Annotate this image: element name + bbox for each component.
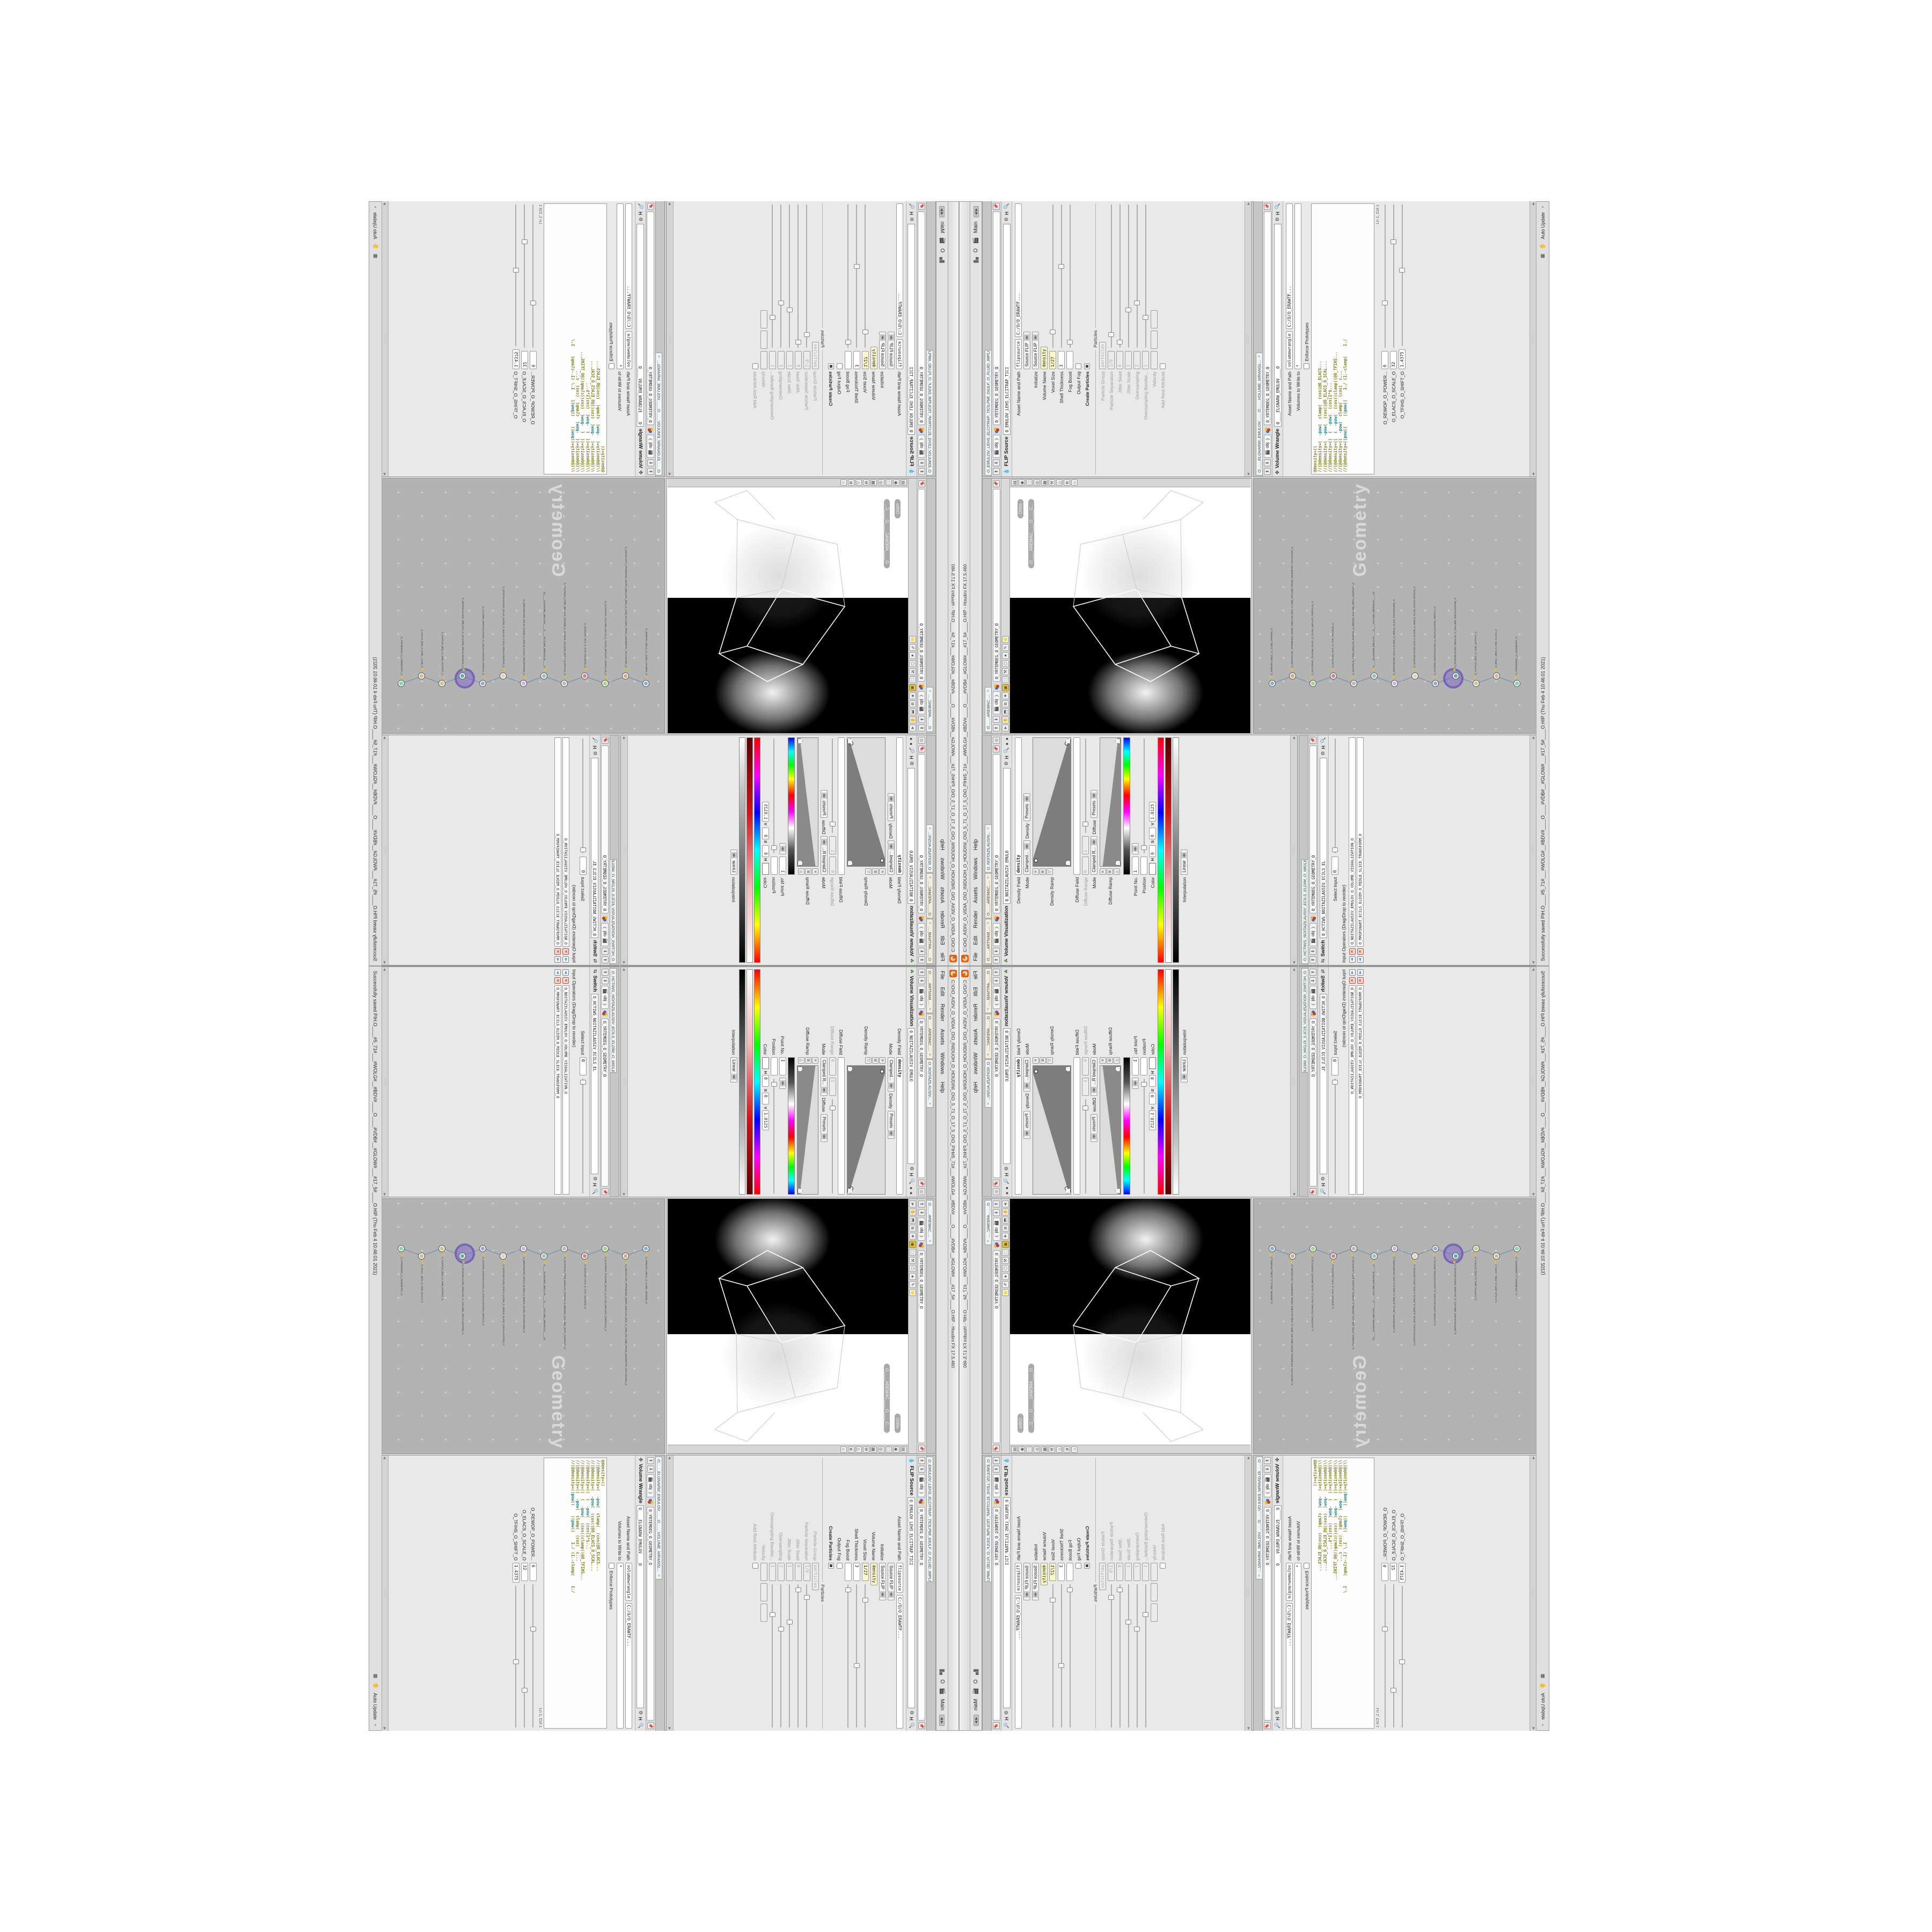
- node-name-field[interactable]: O_NOITAZILAUSIV_EMULO: [908, 768, 916, 904]
- viewport-render-area[interactable]: Ortho O____AREMAC____O____C...: [668, 1199, 908, 1445]
- value-slider[interactable]: [739, 737, 745, 963]
- menu-help[interactable]: Help: [939, 839, 945, 851]
- asset-name-field[interactable]: volumewrangle: [625, 331, 632, 369]
- camera-pill-ortho[interactable]: Ortho: [895, 499, 901, 518]
- pane-tab[interactable]: O_NOITAZILAUSIV...✕: [985, 1059, 991, 1108]
- viewport-display-icon[interactable]: ▦: [870, 480, 877, 486]
- viewport-display-icon[interactable]: ⬚: [885, 480, 892, 486]
- pane-tab[interactable]: O____ELGNARW_EMULOV____O____VOLUME_WRANG…: [1256, 1457, 1262, 1579]
- viewport-tool-icon[interactable]: ▣: [1002, 1241, 1009, 1248]
- network-node[interactable]: [1269, 680, 1276, 687]
- menu-assets[interactable]: Assets: [973, 887, 979, 903]
- val-input[interactable]: 1.8125: [762, 1110, 769, 1130]
- param-field[interactable]: 2: [778, 351, 785, 369]
- viewport-display-icon[interactable]: ⬚: [1026, 480, 1033, 486]
- diffuse-ramp-gradient[interactable]: [1123, 737, 1130, 875]
- presets2-dropdown[interactable]: Presets◀▶: [1091, 790, 1097, 818]
- color-swatch[interactable]: [762, 863, 769, 875]
- param-slider[interactable]: [1108, 1583, 1115, 1729]
- param-slider[interactable]: [845, 203, 852, 349]
- menu-windows[interactable]: Windows: [939, 858, 945, 880]
- ramp-point[interactable]: [1034, 1070, 1038, 1073]
- camera-pill-ortho[interactable]: Ortho: [1018, 499, 1023, 518]
- pane-scrollbar[interactable]: ◀::::::▶: [1245, 201, 1252, 477]
- node-name-field[interactable]: O_EMULOV_LEHS_ELCITRAP_TICI: [908, 224, 916, 435]
- diffuse-ramp-editor[interactable]: [797, 737, 818, 867]
- param-checkbox[interactable]: [1075, 363, 1081, 369]
- network-node[interactable]: [622, 672, 629, 679]
- network-node[interactable]: [500, 1253, 507, 1260]
- node-flag[interactable]: [1311, 676, 1313, 678]
- asset-path-field[interactable]: C:/O/O_ERAWTF...: [625, 1603, 632, 1729]
- nav-down-icon[interactable]: ⬇: [1264, 1466, 1271, 1473]
- param-field[interactable]: [760, 1583, 767, 1601]
- node-flag[interactable]: [1351, 676, 1353, 678]
- gear-icon[interactable]: ⚙: [909, 1166, 914, 1170]
- pane-scrollbar[interactable]: ◀::::::▶: [382, 201, 389, 477]
- node-name-field[interactable]: O_EMULOV_LEHS_ELCITRAP_TICI: [908, 1497, 916, 1708]
- network-node[interactable]: [418, 672, 425, 679]
- point-no-input[interactable]: 1: [1132, 1057, 1139, 1075]
- ramp-add-icon[interactable]: ⊞: [872, 1057, 879, 1064]
- nav-left-right[interactable]: ◀ ▶: [940, 1715, 945, 1726]
- node-flag[interactable]: [646, 676, 648, 678]
- context-crumb[interactable]: 🎬obj❯: [918, 1474, 926, 1497]
- pane-tab[interactable]: O____AREMAC_...✕: [985, 873, 991, 918]
- pane-tab[interactable]: O____AREMAC_...✕: [927, 1014, 933, 1059]
- node-flag[interactable]: [605, 1254, 608, 1256]
- spare-param-field[interactable]: 6: [1381, 351, 1388, 369]
- reorder-icon[interactable]: ➜: [555, 956, 561, 963]
- viewport-display-icon[interactable]: ⚒: [1049, 1446, 1055, 1453]
- gear-icon[interactable]: ⚙: [1004, 1710, 1009, 1715]
- mode-dropdown[interactable]: Clamped...◀▶: [888, 840, 895, 875]
- search-icon[interactable]: 🔍: [1004, 203, 1009, 209]
- param-field[interactable]: 1/27: [1049, 351, 1056, 369]
- node-name-field[interactable]: O_NOITAZILAUSIV_EMULO: [908, 1028, 916, 1164]
- houdini-help-icon[interactable]: H: [1004, 1717, 1009, 1721]
- asset-name-field[interactable]: flipsource: [1015, 1563, 1022, 1593]
- pin-icon[interactable]: 📌: [918, 480, 925, 487]
- node-flag[interactable]: [422, 1261, 424, 1263]
- pin-icon[interactable]: 📌: [602, 737, 609, 744]
- sat-input[interactable]: 0: [1149, 828, 1156, 839]
- viewport-tool-icon[interactable]: ●: [1002, 1273, 1009, 1280]
- camera-pill-name[interactable]: O____AREMAC____O____C...: [884, 499, 890, 568]
- ramp-add-icon[interactable]: ⊞: [1107, 868, 1113, 875]
- pane-tab[interactable]: O_HCTIWS_NOITAZILAUSIV_ECILS_ELDIM_O_MID…: [1301, 859, 1308, 964]
- param-field[interactable]: [845, 351, 852, 369]
- viewport-display-icon[interactable]: ○: [840, 1446, 847, 1453]
- asset-path-field[interactable]: C:/O/O_ERAWTF...: [1015, 1595, 1022, 1729]
- ramp-expand-icon[interactable]: △: [1114, 868, 1120, 875]
- density-field-input[interactable]: density: [1015, 737, 1022, 875]
- param-slider[interactable]: [853, 203, 860, 349]
- diffuse-range-slider[interactable]: [1082, 1098, 1089, 1195]
- param-field[interactable]: density: [870, 1563, 877, 1585]
- network-node[interactable]: [398, 1245, 405, 1252]
- param-field[interactable]: [1151, 310, 1158, 328]
- param-field[interactable]: 1: [1125, 351, 1132, 369]
- network-node[interactable]: [1371, 672, 1378, 679]
- viewport-tool-icon[interactable]: ⬒: [909, 1217, 916, 1224]
- auto-update-selector[interactable]: Auto Update: [1540, 213, 1546, 239]
- reorder-icon[interactable]: ➜: [563, 969, 569, 976]
- node-flag[interactable]: [1290, 1261, 1292, 1263]
- position-slider[interactable]: [771, 737, 778, 854]
- viewport-tool-icon[interactable]: ●: [909, 652, 916, 659]
- search-icon[interactable]: 🔍: [909, 1179, 914, 1184]
- hue-slider[interactable]: [1158, 737, 1164, 963]
- pane-tab[interactable]: O____ARTNAM_...✕: [927, 919, 933, 964]
- remove-operator-icon[interactable]: ✕: [1357, 948, 1364, 955]
- context-crumb[interactable]: 🎬obj❯: [993, 1474, 1000, 1497]
- param-slider[interactable]: [1058, 1583, 1065, 1729]
- network-node[interactable]: [438, 680, 445, 687]
- param-field[interactable]: particles: [1099, 1563, 1106, 1590]
- viewport-tool-icon[interactable]: ⭐: [909, 1289, 916, 1296]
- param-slider[interactable]: [1066, 203, 1073, 349]
- network-node[interactable]: [581, 672, 588, 679]
- param-field[interactable]: density: [870, 347, 877, 369]
- context-crumb[interactable]: 🎬obj❯: [918, 923, 926, 946]
- remove-operator-icon[interactable]: ✕: [563, 977, 569, 984]
- menu-windows[interactable]: Windows: [939, 1052, 945, 1074]
- asset-name-field[interactable]: volumewrangle: [1286, 1563, 1293, 1601]
- value-slider[interactable]: [739, 969, 745, 1195]
- title-bar[interactable]: C:\O\O_AIDIV_O_VIDIA_O\O_INIDUOH_O_HOUDI…: [948, 202, 958, 965]
- menu-edit[interactable]: Edit: [939, 936, 945, 945]
- param-slider[interactable]: [1390, 203, 1397, 349]
- param-field[interactable]: 0: [1116, 1563, 1123, 1581]
- network-node[interactable]: [520, 1245, 527, 1252]
- param-slider[interactable]: [1066, 1583, 1073, 1729]
- nav-down-icon[interactable]: ⬇: [647, 1466, 654, 1473]
- pin-icon[interactable]: 📌: [993, 203, 1000, 210]
- menu-file[interactable]: File: [973, 971, 979, 979]
- vexpression-editor[interactable]: @density=(( //(@density=( -pow( clamp( (…: [1311, 203, 1374, 474]
- sat-input[interactable]: 0: [1149, 1093, 1156, 1104]
- info-icon[interactable]: ●: [1004, 1187, 1009, 1189]
- target-icon[interactable]: ◎: [993, 737, 1000, 744]
- houdini-help-icon[interactable]: H: [1004, 756, 1009, 759]
- nav-down-icon[interactable]: ⬇: [918, 716, 925, 723]
- viewport-tool-icon[interactable]: ⬒: [1002, 1217, 1009, 1224]
- network-node[interactable]: [1350, 680, 1357, 687]
- ramp-add-icon[interactable]: ⊞: [1040, 1057, 1046, 1064]
- node-flag[interactable]: [442, 1254, 444, 1256]
- pane-tab[interactable]: O_HCTIWS_NOITAZILAUSIV_ECILS_ELDIM_O_MID…: [610, 859, 617, 964]
- node-path-field[interactable]: O_YRTEMOEG_O_GEOMETRY_O: [1309, 1019, 1317, 1187]
- param-field[interactable]: [1151, 1583, 1158, 1601]
- viewport-tool-icon[interactable]: ⭐: [1002, 636, 1009, 643]
- density-field-input[interactable]: density: [896, 737, 903, 875]
- nav-down-icon[interactable]: ⬇: [602, 948, 609, 955]
- search-icon[interactable]: 🔍: [1004, 748, 1009, 753]
- mode-dropdown[interactable]: Clamped...◀▶: [888, 1057, 895, 1092]
- houdini-help-icon[interactable]: H: [909, 211, 914, 215]
- pane-tab[interactable]: O____AREMAC_...✕: [927, 1200, 933, 1245]
- pane-tab[interactable]: O____AREMAC_...✕: [985, 1014, 991, 1059]
- node-flag[interactable]: [503, 669, 506, 671]
- value-slider[interactable]: [1173, 737, 1179, 963]
- nav-up-icon[interactable]: ⬆: [1309, 969, 1316, 976]
- reorder-icon[interactable]: ➜: [1349, 956, 1356, 963]
- spare-param-field[interactable]: 32: [521, 1563, 528, 1581]
- network-node[interactable]: [540, 1253, 547, 1260]
- node-name-field[interactable]: O_HCTIWS_NOITAZILAUSIV_ECILS_EL: [591, 758, 599, 938]
- remove-operator-icon[interactable]: ✕: [1349, 948, 1356, 955]
- network-node[interactable]: [1309, 1245, 1316, 1252]
- param-slider[interactable]: [1142, 1583, 1149, 1729]
- search-icon[interactable]: 🔍: [1275, 203, 1280, 209]
- pane-tab[interactable]: O____AREMAC_...✕: [985, 1200, 991, 1245]
- nav-up-icon[interactable]: ⬆: [918, 468, 925, 475]
- viewport-tool-icon[interactable]: ✋: [1002, 1209, 1009, 1216]
- param-slider[interactable]: [803, 203, 810, 349]
- node-name-field[interactable]: O_NOITAZILAUSIV_EMULO: [1003, 1028, 1011, 1164]
- saturation-slider[interactable]: [1165, 737, 1172, 963]
- param-dropdown[interactable]: Source FLIP◀▶: [1032, 1563, 1039, 1600]
- help-icon[interactable]: ●: [1004, 737, 1009, 740]
- pane-scrollbar[interactable]: ◀::::::▶: [621, 735, 628, 965]
- viewport-tool-icon[interactable]: ⧉: [909, 1225, 916, 1232]
- viewport-tool-icon[interactable]: ⚒: [1002, 1257, 1009, 1264]
- network-node[interactable]: [418, 1253, 425, 1260]
- viewport-display-icon[interactable]: ⚒: [863, 480, 869, 486]
- viewport-display-icon[interactable]: ◉: [893, 1446, 899, 1453]
- interpolation-dropdown[interactable]: Linear◀▶: [1181, 850, 1188, 875]
- param-slider[interactable]: [513, 203, 519, 347]
- ramp-marker[interactable]: [797, 738, 803, 744]
- nav-up-icon[interactable]: ⬆: [993, 1201, 1000, 1207]
- diffuse-ramp-editor[interactable]: [1100, 737, 1121, 867]
- node-flag[interactable]: [1270, 676, 1272, 678]
- select-input-slider[interactable]: [1331, 737, 1338, 854]
- menu-windows[interactable]: Windows: [973, 858, 979, 880]
- houdini-help-icon[interactable]: H: [1004, 211, 1009, 215]
- viewport-display-icon[interactable]: ▤: [901, 1446, 907, 1453]
- mode2-dropdown[interactable]: Clamped R...◀▶: [1091, 1057, 1097, 1096]
- context-crumb[interactable]: 🎬obj❯: [1264, 435, 1271, 458]
- diffuse-range-max[interactable]: 1: [829, 1078, 836, 1096]
- reorder-icon[interactable]: ➜: [1357, 956, 1364, 963]
- search-icon[interactable]: 🔍: [909, 748, 914, 753]
- pane-tab[interactable]: O____AREMAC_...✕: [927, 687, 933, 732]
- viewport-display-icon[interactable]: △: [1056, 480, 1063, 486]
- color-swatch[interactable]: [1149, 863, 1156, 875]
- spare-param-field[interactable]: 1.4375: [513, 1563, 519, 1583]
- node-name-field[interactable]: O_HCTIWS_NOITAZILAUSIV_ECILS_EL: [1320, 758, 1327, 938]
- pane-tab[interactable]: O____ELGNARW_EMULOV____O____VOLUME_WRANG…: [656, 1457, 662, 1579]
- node-flag[interactable]: [1270, 1254, 1272, 1256]
- pin-icon[interactable]: 📌: [1264, 203, 1271, 210]
- preset-dropdown[interactable]: Source FLIP◀▶: [1023, 1563, 1030, 1600]
- gear-icon[interactable]: ⚙: [1320, 1176, 1326, 1181]
- menu-assets[interactable]: Assets: [939, 887, 945, 903]
- context-crumb[interactable]: 🎬obj❯: [918, 435, 926, 458]
- title-bar[interactable]: C:\O\O_AIDIV_O_VIDIA_O\O_INIDUOH_O_HOUDI…: [960, 967, 970, 1730]
- param-slider[interactable]: [521, 1583, 528, 1729]
- gear-icon[interactable]: ⚙: [592, 751, 598, 756]
- node-path-field[interactable]: O_YRTEMOEG_O_GEOMETRY_O: [918, 211, 926, 425]
- reorder-icon[interactable]: ➜: [1357, 969, 1364, 976]
- select-input-field[interactable]: 0: [580, 1057, 587, 1075]
- param-field[interactable]: density: [1041, 347, 1048, 369]
- pane-network-editor[interactable]: ++++++++++++++++++++++++++++++++++++++++…: [381, 478, 665, 734]
- nav-up-icon[interactable]: ⬆: [602, 969, 609, 976]
- param-field[interactable]: 3: [1058, 351, 1065, 369]
- gear-icon[interactable]: ⚙: [1004, 1166, 1009, 1170]
- param-field[interactable]: 3: [853, 351, 860, 369]
- param-checkbox[interactable]: [828, 363, 834, 369]
- viewport-display-icon[interactable]: △: [855, 1446, 862, 1453]
- node-flag[interactable]: [1290, 669, 1292, 671]
- diffuse-field-input[interactable]: [838, 737, 845, 875]
- desktop-selector[interactable]: Main: [973, 1699, 979, 1711]
- position-input[interactable]: [771, 1057, 778, 1075]
- param-field[interactable]: [1151, 331, 1158, 349]
- node-flag[interactable]: [565, 676, 567, 678]
- interpolation-dropdown[interactable]: Linear◀▶: [1181, 1057, 1188, 1082]
- pane-scrollbar[interactable]: ◀::::::▶: [382, 735, 389, 965]
- node-name-field[interactable]: O_HCTIWS_NOITAZILAUSIV_ECILS_EL: [1320, 994, 1327, 1174]
- param-field[interactable]: [1151, 1604, 1158, 1622]
- camera-pill-ortho[interactable]: Ortho: [895, 1414, 901, 1433]
- sat-input[interactable]: 0: [762, 1093, 769, 1104]
- nav-left-right[interactable]: ◀ ▶: [940, 206, 945, 217]
- sat-input[interactable]: 0: [762, 828, 769, 839]
- saturation-slider[interactable]: [747, 969, 753, 1195]
- layout-grid-icon[interactable]: [940, 1669, 945, 1675]
- pin-icon[interactable]: 📌: [993, 1445, 1000, 1452]
- search-icon[interactable]: 🔍: [909, 1723, 914, 1729]
- pane-scrollbar[interactable]: ◀::::::▶: [667, 201, 674, 477]
- viewport-tool-icon[interactable]: ⬒: [1002, 708, 1009, 715]
- context-crumb[interactable]: 🎬obj❯: [993, 691, 1000, 714]
- node-flag[interactable]: [646, 1254, 648, 1256]
- remove-operator-icon[interactable]: ✕: [1349, 977, 1356, 984]
- pin-icon[interactable]: 📌: [647, 1722, 654, 1729]
- viewport-tool-icon[interactable]: ✷: [1002, 692, 1009, 699]
- remove-operator-icon[interactable]: ✕: [1357, 977, 1364, 984]
- desktop-selector[interactable]: Main: [939, 222, 945, 233]
- info-icon[interactable]: ●: [909, 742, 914, 745]
- nav-down-icon[interactable]: ⬇: [993, 977, 1000, 984]
- enforce-prototypes-checkbox[interactable]: [1304, 1563, 1309, 1569]
- spare-param-field[interactable]: 6: [530, 1563, 537, 1581]
- pin-icon[interactable]: 📌: [1309, 737, 1316, 744]
- spare-param-field[interactable]: 1.4375: [513, 349, 519, 369]
- param-slider[interactable]: [1133, 1583, 1140, 1729]
- node-name-field[interactable]: O_NOITAZILAUSIV_EMULO: [1003, 768, 1011, 904]
- houdini-help-icon[interactable]: H: [1275, 1717, 1280, 1721]
- param-checkbox[interactable]: [1160, 363, 1166, 369]
- viewport-display-icon[interactable]: ▤: [901, 480, 907, 486]
- context-crumb[interactable]: 🎬obj❯: [993, 986, 1000, 1009]
- diffuse-ramp-gradient[interactable]: [788, 1057, 795, 1195]
- desktop-selector[interactable]: Main: [973, 222, 979, 233]
- operator-name[interactable]: O_MROFSNART_ECILS_ELDIM_O_MIDLE_SLICE_TR…: [554, 985, 561, 1195]
- pin-icon[interactable]: 📌: [918, 1180, 925, 1187]
- presets2-dropdown[interactable]: Presets◀▶: [821, 1114, 828, 1142]
- viewport-render-area[interactable]: Ortho O____AREMAC____O____C...: [1010, 1199, 1250, 1445]
- diffuse-range-min[interactable]: 0: [1082, 857, 1089, 875]
- node-flag[interactable]: [524, 1254, 526, 1256]
- menu-file[interactable]: File: [939, 953, 945, 961]
- ramp-marker[interactable]: [1115, 1188, 1121, 1194]
- viewport-display-icon[interactable]: ▦: [1041, 1446, 1048, 1453]
- node-flag[interactable]: [1331, 669, 1333, 671]
- node-path-field[interactable]: O_YRTEMOEG_O_GEOMETRY_O: [647, 1507, 655, 1721]
- ramp-expand-icon[interactable]: △: [1114, 1057, 1120, 1064]
- param-checkbox[interactable]: [1084, 1563, 1090, 1569]
- network-node[interactable]: [1432, 680, 1439, 687]
- menu-file[interactable]: File: [939, 971, 945, 979]
- pin-icon[interactable]: 📌: [918, 1722, 925, 1729]
- nav-up-icon[interactable]: ⬆: [1264, 1457, 1271, 1464]
- network-node[interactable]: [459, 1253, 466, 1260]
- viewport-display-icon[interactable]: ◉: [893, 480, 899, 486]
- param-slider[interactable]: [530, 203, 537, 349]
- node-flag[interactable]: [1331, 1261, 1333, 1263]
- pane-tab[interactable]: O_NOITAZILAUSIV...✕: [985, 824, 991, 873]
- menu-assets[interactable]: Assets: [973, 1029, 979, 1045]
- ramp-delete-icon[interactable]: ✕: [1100, 1057, 1106, 1064]
- operator-name[interactable]: O_MROFSNART_ECILS_ELDIM_O_MIDLE_SLICE_TR…: [1357, 737, 1364, 947]
- menu-file[interactable]: File: [973, 953, 979, 961]
- param-field[interactable]: 1/27: [1049, 1563, 1056, 1581]
- context-crumb[interactable]: 🎬obj❯: [647, 435, 655, 458]
- ramp-delete-icon[interactable]: ✕: [1033, 868, 1039, 875]
- vexpression-editor[interactable]: @density=(( //(@density=( -pow( clamp( (…: [544, 1458, 607, 1729]
- network-node[interactable]: [1330, 1253, 1337, 1260]
- node-path-field[interactable]: O_YRTEMOEG_O_GEOMETRY_O: [602, 1019, 609, 1187]
- node-name-field[interactable]: O_EMULOV_LEHS_ELCITRAP_TICI: [1003, 224, 1011, 435]
- diffuse-ramp-gradient[interactable]: [1123, 1057, 1130, 1195]
- select-input-slider[interactable]: [580, 1078, 587, 1195]
- point-no-input[interactable]: 1: [779, 1057, 786, 1075]
- param-slider[interactable]: [769, 1583, 776, 1729]
- diffuse-range-slider[interactable]: [829, 737, 836, 834]
- nav-down-icon[interactable]: ⬇: [1264, 459, 1271, 466]
- position-slider[interactable]: [771, 1078, 778, 1195]
- context-crumb[interactable]: 🎬obj❯: [993, 923, 1000, 946]
- node-flag[interactable]: [1453, 1261, 1455, 1263]
- param-field[interactable]: 1/9: [1108, 1563, 1115, 1581]
- param-field[interactable]: 0: [795, 1563, 802, 1581]
- gear-icon[interactable]: ⚙: [638, 217, 643, 222]
- context-crumb[interactable]: 🎬obj❯: [647, 1474, 655, 1497]
- viewport-display-icon[interactable]: ◎: [1034, 1446, 1040, 1453]
- param-checkbox[interactable]: [752, 363, 758, 369]
- pane-tab[interactable]: O_EMULOV_LEHS_ELCITRAP_TICILPMI_DIULF_O_…: [985, 350, 991, 475]
- node-flag[interactable]: [585, 1261, 587, 1263]
- pane-scrollbar[interactable]: ◀::::::▶: [667, 1455, 674, 1731]
- param-checkbox[interactable]: [752, 1563, 758, 1569]
- hue-input[interactable]: 0: [1149, 1075, 1156, 1087]
- pane-network-editor[interactable]: ++++++++++++++++++++++++++++++++++++++++…: [381, 1198, 665, 1454]
- viewport-tool-icon[interactable]: ⧉: [1002, 700, 1009, 707]
- preset-dropdown[interactable]: Source FLIP◀▶: [888, 332, 895, 369]
- network-node[interactable]: [1513, 1245, 1520, 1252]
- hue-slider[interactable]: [1158, 969, 1164, 1195]
- viewport-display-icon[interactable]: ⧉: [1064, 480, 1070, 486]
- viewport-tool-icon[interactable]: ✷: [1002, 1233, 1009, 1240]
- node-path-field[interactable]: O_YRTEMOEG_O_GEOMETRY_O: [918, 1250, 926, 1443]
- remove-operator-icon[interactable]: ✕: [555, 948, 561, 955]
- network-node[interactable]: [1330, 672, 1337, 679]
